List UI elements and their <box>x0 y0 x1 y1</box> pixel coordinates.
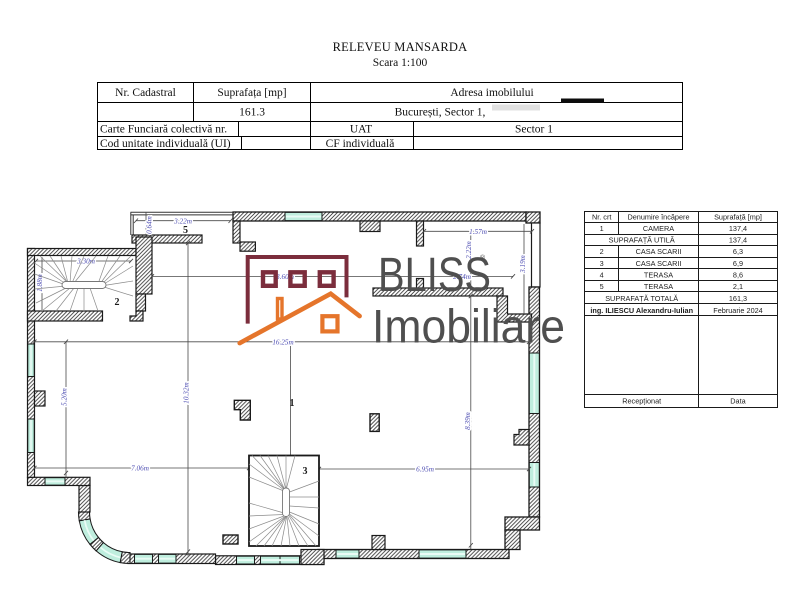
svg-text:CASA SCARII: CASA SCARII <box>636 247 682 256</box>
svg-text:5: 5 <box>183 225 188 236</box>
svg-text:Scara 1:100: Scara 1:100 <box>373 57 428 69</box>
svg-text:3: 3 <box>600 259 604 268</box>
svg-text:Suprafața [mp]: Suprafața [mp] <box>217 87 286 99</box>
svg-text:RELEVEU MANSARDA: RELEVEU MANSARDA <box>333 40 468 54</box>
svg-text:1.57m: 1.57m <box>469 228 487 236</box>
svg-text:Februarie 2024: Februarie 2024 <box>713 306 763 315</box>
svg-text:CAMERA: CAMERA <box>643 224 674 233</box>
svg-text:CASA SCARII: CASA SCARII <box>636 259 682 268</box>
svg-text:Nr. Cadastral: Nr. Cadastral <box>115 87 176 99</box>
svg-text:Recepționat: Recepționat <box>622 396 661 405</box>
svg-text:6.95m: 6.95m <box>416 466 434 474</box>
svg-text:161,3: 161,3 <box>729 294 747 303</box>
svg-text:TERASA: TERASA <box>644 270 673 279</box>
svg-text:Cod unitate individuală (UI): Cod unitate individuală (UI) <box>100 138 231 150</box>
svg-text:SUPRAFAȚĂ TOTALĂ: SUPRAFAȚĂ TOTALĂ <box>605 294 678 303</box>
svg-text:1: 1 <box>600 224 604 233</box>
svg-text:3.30m: 3.30m <box>76 258 95 266</box>
svg-text:SUPRAFAȚĂ UTILĂ: SUPRAFAȚĂ UTILĂ <box>609 236 675 245</box>
svg-text:10.32m: 10.32m <box>183 382 191 403</box>
svg-text:Carte Funciară colectivă nr.: Carte Funciară colectivă nr. <box>100 123 227 135</box>
svg-text:3.19m: 3.19m <box>519 255 527 274</box>
svg-text:București, Sector 1,: București, Sector 1, <box>395 107 486 119</box>
svg-text:2: 2 <box>115 297 120 308</box>
svg-text:Denumire încăpere: Denumire încăpere <box>627 212 689 221</box>
svg-text:161.3: 161.3 <box>239 107 265 119</box>
svg-text:137,4: 137,4 <box>729 224 747 233</box>
svg-text:5: 5 <box>600 282 604 291</box>
svg-text:6,9: 6,9 <box>733 259 743 268</box>
svg-text:BLISS: BLISS <box>378 249 491 302</box>
svg-text:Nr. crt: Nr. crt <box>592 212 611 221</box>
svg-text:8.39m: 8.39m <box>464 412 472 430</box>
svg-text:1: 1 <box>290 398 295 409</box>
svg-text:UAT: UAT <box>350 123 372 135</box>
svg-text:8,6: 8,6 <box>733 270 743 279</box>
svg-text:5.20m: 5.20m <box>61 388 69 406</box>
svg-text:Adresa imobilului: Adresa imobilului <box>450 87 533 99</box>
svg-text:CF individuală: CF individuală <box>326 138 395 150</box>
svg-text:Suprafață [mp]: Suprafață [mp] <box>714 212 762 221</box>
svg-text:Sector 1: Sector 1 <box>515 123 553 135</box>
svg-text:ing. ILIESCU Alexandru-Iulian: ing. ILIESCU Alexandru-Iulian <box>590 306 693 315</box>
svg-text:TERASA: TERASA <box>644 282 673 291</box>
svg-text:0.64m: 0.64m <box>146 216 154 234</box>
svg-text:7.06m: 7.06m <box>131 465 149 473</box>
svg-text:®: ® <box>480 254 486 262</box>
svg-text:3: 3 <box>303 466 308 477</box>
svg-text:Data: Data <box>730 396 746 405</box>
svg-text:2: 2 <box>600 247 604 256</box>
svg-text:137,4: 137,4 <box>729 236 747 245</box>
svg-text:2,1: 2,1 <box>733 282 743 291</box>
svg-text:Imobiliare: Imobiliare <box>372 300 565 353</box>
svg-text:4: 4 <box>600 270 604 279</box>
svg-text:6,3: 6,3 <box>733 247 743 256</box>
svg-text:16.25m: 16.25m <box>272 339 293 347</box>
